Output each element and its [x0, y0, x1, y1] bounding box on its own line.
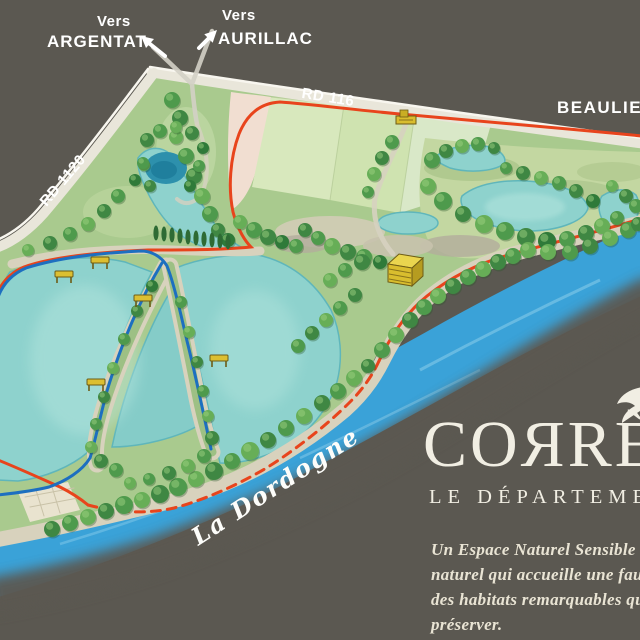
nature-site-map: Vers ARGENTAT Vers AURILLAC RD 116 RD 11… [0, 0, 640, 640]
description-line-4: préserver. [431, 615, 502, 635]
beaulieu-label: BEAULIEU [557, 98, 640, 118]
description-line-3: des habitats remarquables qu [431, 590, 640, 610]
vers-aurillac-label: AURILLAC [218, 29, 313, 49]
correze-logo-subtitle: LE DÉPARTEMENT [429, 486, 640, 509]
correze-logo-title: COЯRÈZE [423, 412, 640, 478]
observation-hut-icon [388, 254, 423, 286]
vers-aurillac-prefix: Vers [222, 7, 256, 24]
vers-argentat-prefix: Vers [97, 13, 131, 30]
description-line-2: naturel qui accueille une fau [431, 565, 640, 585]
vers-argentat-label: ARGENTAT [47, 32, 147, 52]
description-line-1: Un Espace Naturel Sensible (E [431, 540, 640, 560]
